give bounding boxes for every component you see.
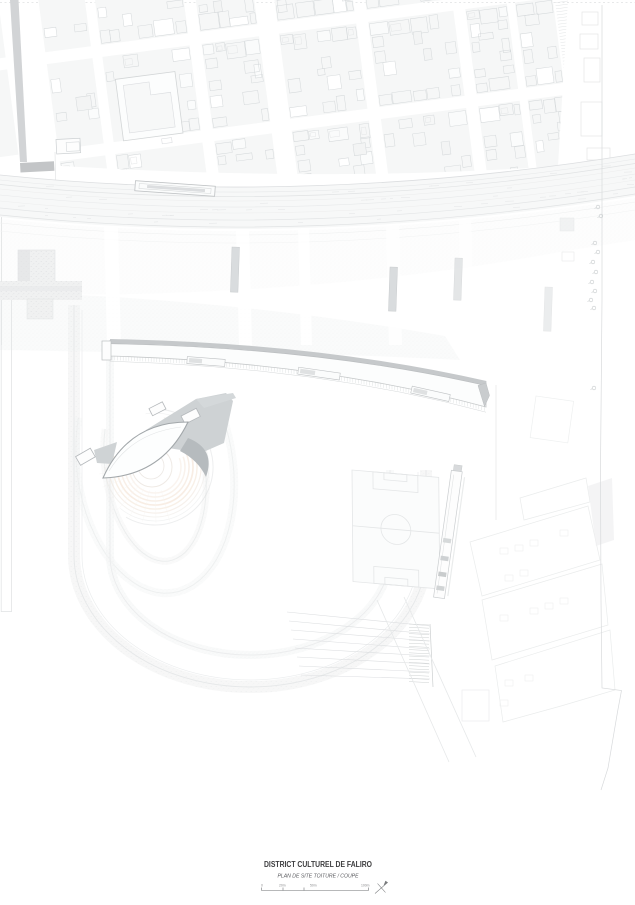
svg-text:0: 0 [261, 884, 263, 888]
svg-text:100m: 100m [361, 884, 370, 888]
svg-text:20m: 20m [279, 884, 286, 888]
svg-text:DISTRICT CULTUREL DE FALIRO: DISTRICT CULTUREL DE FALIRO [264, 859, 372, 869]
svg-text:50m: 50m [310, 884, 317, 888]
svg-text:PLAN DE SITE TOITURE / COUPE: PLAN DE SITE TOITURE / COUPE [278, 874, 359, 880]
